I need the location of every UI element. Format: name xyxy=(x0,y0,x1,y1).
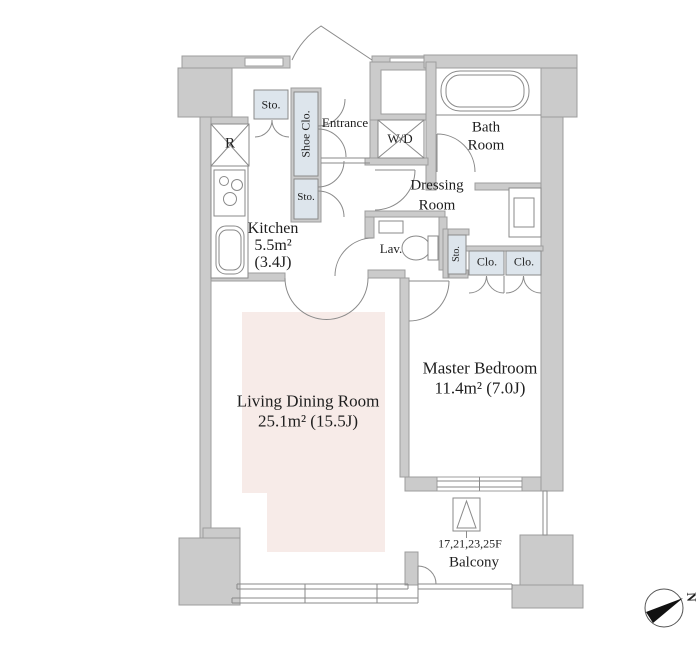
storage-small-label: Sto. xyxy=(451,246,464,262)
bathtub xyxy=(436,71,541,115)
living-room-floor-shading xyxy=(242,312,385,552)
dressing-room-label-1: Dressing xyxy=(410,177,463,196)
entrance-door-swing xyxy=(292,26,372,60)
entrance-label: Entrance xyxy=(322,115,368,131)
balcony-label: Balcony xyxy=(449,554,499,573)
bath-room-label-1: Bath xyxy=(472,119,500,138)
storage-mid-label: Sto. xyxy=(297,191,314,205)
living-room-window xyxy=(237,584,408,589)
floor-plan-drawing xyxy=(0,0,700,650)
balcony-floors-label: 17,21,23,25F xyxy=(438,537,502,552)
balcony-rail-right xyxy=(418,584,512,589)
kitchen-counter xyxy=(211,166,248,278)
master-bedroom-label: Master Bedroom xyxy=(423,357,538,378)
closet-left-label: Clo. xyxy=(477,255,497,270)
dressing-door-swing xyxy=(375,170,415,210)
living-room-area: 25.1m² (15.5J) xyxy=(258,410,358,431)
bedroom-door-swing xyxy=(409,281,449,321)
washbasin xyxy=(509,188,541,237)
bath-room-label-2: Room xyxy=(468,137,505,156)
entrance-step-lines xyxy=(321,158,370,163)
lavatory-label: Lav. xyxy=(380,241,403,257)
balcony-escape-hatch xyxy=(453,498,480,538)
balcony-rail xyxy=(232,584,418,603)
north-label: N xyxy=(683,592,700,602)
balcony-partition xyxy=(543,491,547,535)
closet-right-label: Clo. xyxy=(514,255,534,270)
washer-dryer-label: W/D xyxy=(387,131,412,147)
dressing-room-label-2: Room xyxy=(419,197,456,216)
storage-top-label: Sto. xyxy=(261,98,280,113)
living-room-label: Living Dining Room xyxy=(237,390,380,411)
storage-top-doors xyxy=(255,120,289,137)
north-compass xyxy=(645,589,683,627)
master-bedroom-area: 11.4m² (7.0J) xyxy=(435,377,526,398)
refrigerator-label: R xyxy=(225,135,235,154)
shoe-closet-label: Shoe Clo. xyxy=(299,110,314,157)
lavatory-door-swing xyxy=(335,238,373,276)
kitchen-tatami: (3.4J) xyxy=(255,253,292,273)
closet-folding-doors xyxy=(469,276,541,293)
balcony-door-swing xyxy=(418,566,436,584)
floor-plan: Kitchen 5.5m² (3.4J) Living Dining Room … xyxy=(0,0,700,650)
